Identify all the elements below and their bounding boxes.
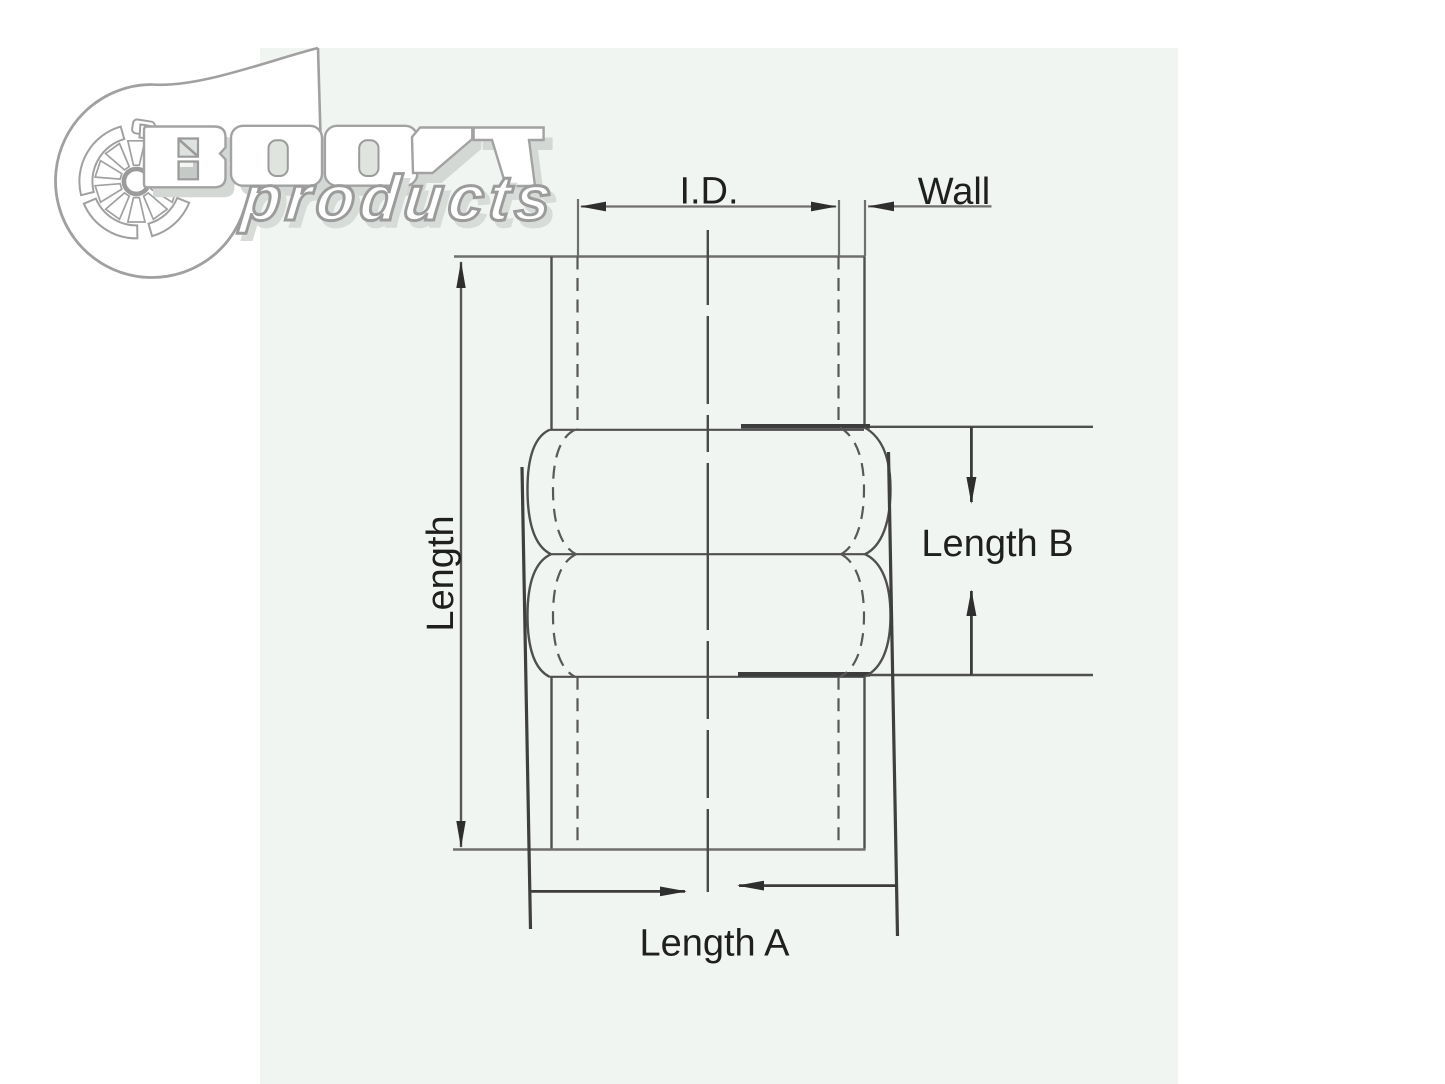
svg-text:Wall: Wall [918,171,990,213]
svg-text:products: products [237,162,560,234]
svg-text:Length A: Length A [639,923,790,965]
svg-text:Length B: Length B [921,523,1073,565]
svg-text:I.D.: I.D. [679,171,738,213]
svg-text:Length: Length [420,515,462,631]
